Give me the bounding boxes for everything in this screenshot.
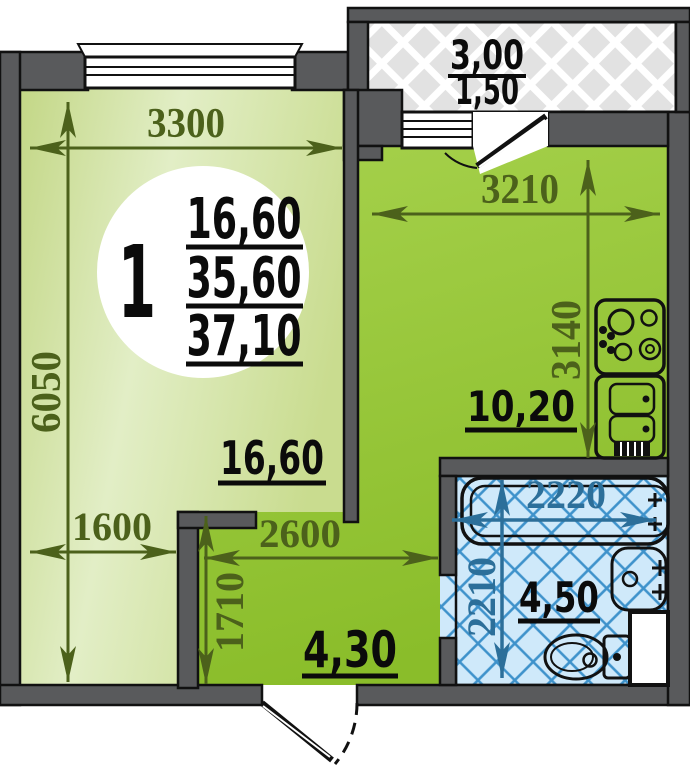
wall-bottom-right [357, 685, 690, 705]
wall-bottom-left [0, 685, 262, 705]
wall-balcony-right [676, 22, 690, 112]
wall-top-right [292, 52, 348, 90]
wall-living-kitchen-divider [344, 90, 358, 522]
wall-bathroom-left-upper [440, 476, 456, 575]
kitchen-height-value: 3140 [544, 300, 590, 380]
unit-total-area: 35,60 [187, 246, 302, 311]
wall-kitchen-top-right [548, 112, 668, 146]
wall-right [668, 112, 690, 705]
hall-area-value: 4,30 [303, 621, 397, 679]
wall-balcony-top [348, 8, 690, 22]
kitchen-width-value: 3210 [481, 167, 559, 213]
kitchen-area-value: 10,20 [467, 382, 575, 431]
hall-area-label: 4,30 [302, 621, 398, 679]
balcony-area-label: 3,00 1,50 [448, 33, 526, 114]
floor-plan: 3300 6050 1600 2600 1710 3210 3140 [0, 0, 690, 768]
unit-living-area: 16,60 [187, 187, 302, 252]
floor-plan-page: 3300 6050 1600 2600 1710 3210 3140 [0, 0, 690, 768]
balcony-area-counted-value: 1,50 [455, 68, 519, 114]
living-area-label: 16,60 [218, 431, 326, 485]
bathroom-door-opening [440, 575, 456, 638]
bathroom-width-value: 2220 [526, 472, 606, 517]
living-height-value: 6050 [24, 351, 70, 433]
unit-badge: 1 16,60 35,60 37,10 [97, 166, 309, 378]
balcony-window [402, 112, 473, 148]
bathroom-height-value: 2210 [459, 557, 504, 637]
hall-width-value: 2600 [259, 511, 341, 556]
entry-door [262, 703, 357, 764]
living-nook-value: 1600 [72, 504, 152, 549]
wall-hall-partition-cap [178, 512, 256, 528]
vent-shaft [630, 612, 668, 685]
bathroom-area-label: 4,50 [518, 573, 600, 622]
living-area-value: 16,60 [220, 431, 324, 485]
bathroom-area-value: 4,50 [519, 573, 599, 622]
wall-hall-partition [178, 512, 198, 688]
wall-bathroom-left-lower [440, 638, 456, 685]
entry-door-swing-arc [335, 703, 357, 764]
unit-rooms-count: 1 [118, 224, 156, 341]
wall-left [0, 52, 20, 705]
hall-depth-value: 1710 [207, 572, 252, 652]
kitchen-area-label: 10,20 [465, 382, 577, 431]
living-width-value: 3300 [147, 101, 225, 147]
unit-total-area-with-balcony: 37,10 [187, 304, 302, 369]
living-room-window [78, 44, 302, 88]
